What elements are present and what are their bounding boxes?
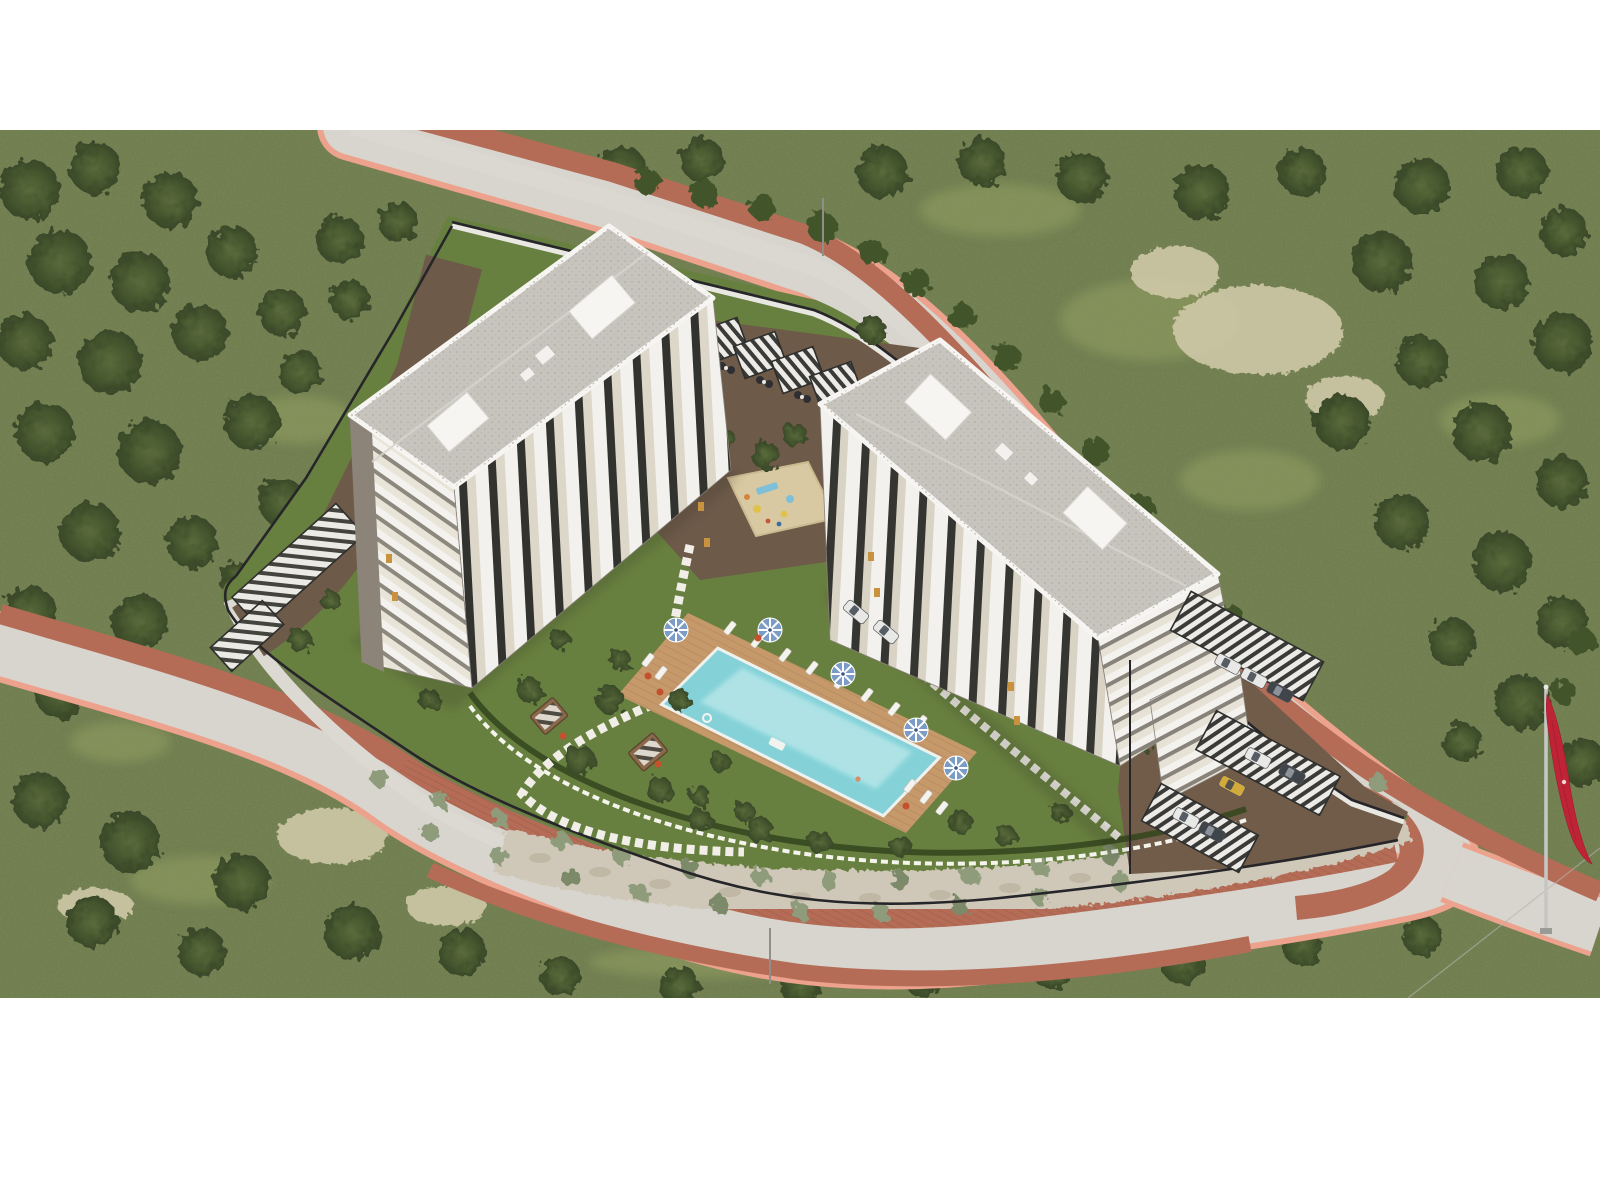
tree-canopy <box>1442 722 1482 762</box>
tree-canopy <box>680 138 724 182</box>
tree-canopy <box>316 216 364 264</box>
tree-canopy <box>1174 164 1230 220</box>
garden-tree <box>688 808 712 832</box>
olive-shrub <box>421 823 439 841</box>
garden-tree <box>710 752 730 772</box>
flowering-shrub <box>903 803 910 810</box>
flowering-shrub <box>645 673 652 680</box>
tree-canopy <box>15 402 75 462</box>
garden-tree <box>609 649 631 671</box>
tree-canopy <box>858 316 886 344</box>
playground-swing <box>744 494 750 500</box>
roadside-bush <box>902 268 930 296</box>
tree-canopy <box>172 304 228 360</box>
roadside-bush <box>859 239 885 265</box>
garden-tree <box>889 835 911 857</box>
tree-canopy <box>330 280 370 320</box>
pergola-table <box>800 395 804 399</box>
tree-canopy <box>856 146 908 198</box>
umbrella <box>664 618 688 642</box>
tree-canopy <box>1394 158 1450 214</box>
olive-shrub <box>551 831 569 849</box>
tree-canopy <box>178 928 226 976</box>
roadside-bush <box>1039 389 1065 415</box>
render-scene <box>0 96 1600 1006</box>
tree-canopy <box>69 142 121 194</box>
olive-shrub <box>1369 774 1387 792</box>
tree-canopy <box>1278 148 1326 196</box>
olive-shrub <box>491 811 509 829</box>
tree-canopy <box>378 202 418 242</box>
rock-outcrop <box>1173 285 1343 375</box>
pergola-seating <box>803 395 811 403</box>
tree-canopy <box>438 928 486 976</box>
roadside-bush <box>690 180 718 208</box>
tree-canopy <box>1536 456 1588 508</box>
tree-canopy <box>1494 674 1550 730</box>
garden-tree <box>735 802 755 822</box>
garden-tree <box>669 689 691 711</box>
lit-window <box>704 538 710 547</box>
tree-canopy <box>0 160 60 220</box>
garden-tree <box>747 817 773 843</box>
garden-tree <box>751 441 779 469</box>
olive-shrub <box>631 884 649 902</box>
umbrella <box>904 718 928 742</box>
lit-window <box>392 592 398 601</box>
pergola-table <box>762 380 766 384</box>
garden-tree <box>647 777 673 803</box>
tree-canopy <box>1374 494 1430 550</box>
playground-seesaw <box>781 511 788 518</box>
tree-canopy <box>958 138 1006 186</box>
olive-shrub <box>711 896 729 914</box>
umbrella <box>758 618 782 642</box>
stone <box>649 879 671 889</box>
roadside-bush <box>1568 628 1596 656</box>
rock-outcrop <box>1130 246 1220 298</box>
grass-patch <box>920 184 1080 236</box>
olive-shrub <box>491 848 509 866</box>
olive-shrub <box>791 902 809 920</box>
umbrella <box>831 662 855 686</box>
stone <box>719 887 741 897</box>
garden-tree <box>948 810 972 834</box>
olive-shrub <box>561 868 579 886</box>
roadside-bush <box>1552 680 1576 704</box>
flowering-shrub <box>560 733 567 740</box>
tree-canopy <box>1472 532 1532 592</box>
olive-shrub <box>431 791 449 809</box>
garden-tree <box>550 630 570 650</box>
tree-canopy <box>1402 916 1442 956</box>
tree-canopy <box>1352 232 1412 292</box>
flowering-shrub <box>657 689 664 696</box>
tree-canopy <box>258 288 306 336</box>
garden-tree <box>808 830 832 854</box>
lit-window <box>1014 716 1020 725</box>
tree-canopy <box>100 812 160 872</box>
garden-tree <box>320 590 340 610</box>
tree-canopy <box>60 502 120 562</box>
umbrella-tip <box>841 672 845 676</box>
garden-tree <box>783 423 807 447</box>
tree-canopy <box>142 172 198 228</box>
grass-patch <box>70 722 170 762</box>
tree-canopy <box>166 516 218 568</box>
tree-canopy <box>118 420 182 484</box>
tree-canopy <box>278 350 322 394</box>
umbrella-tip <box>954 766 958 770</box>
umbrella <box>944 756 968 780</box>
stone <box>1069 873 1091 883</box>
roadside-bush <box>992 343 1020 371</box>
pergola-seating <box>765 380 773 388</box>
playground-spring-toy <box>753 505 761 513</box>
garden-tree <box>565 745 595 775</box>
garden-tree <box>288 628 312 652</box>
tree-canopy <box>224 394 280 450</box>
tree-canopy <box>66 896 118 948</box>
tree-canopy <box>1474 254 1530 310</box>
flowering-shrub <box>655 761 662 768</box>
flag-pole-base <box>1540 928 1552 934</box>
flag-crescent-hint <box>1562 780 1566 784</box>
garden-tree <box>995 825 1017 847</box>
garden-tree <box>690 786 710 806</box>
grass-patch <box>1180 450 1320 510</box>
umbrella-tip <box>674 628 678 632</box>
lit-window <box>1008 682 1014 691</box>
flowering-shrub <box>755 635 762 642</box>
tree-canopy <box>110 252 170 312</box>
tree-canopy <box>1314 394 1370 450</box>
roadside-bush <box>749 194 775 220</box>
roadside-bush <box>949 304 975 330</box>
child-figure <box>777 522 782 527</box>
render-canvas <box>0 0 1600 1200</box>
tree-canopy <box>1056 151 1108 203</box>
tree-canopy <box>1428 618 1476 666</box>
stone <box>529 853 551 863</box>
stone <box>859 893 881 903</box>
lit-window <box>874 588 880 597</box>
umbrella-tip <box>914 728 918 732</box>
stone <box>999 883 1021 893</box>
child-figure <box>766 519 771 524</box>
tree-canopy <box>206 226 258 278</box>
pergola-seating <box>727 366 735 374</box>
tree-canopy <box>1452 402 1512 462</box>
lit-window <box>698 502 704 511</box>
tree-canopy <box>540 956 580 996</box>
olive-shrub <box>371 769 389 787</box>
roadside-bush <box>635 169 661 195</box>
tree-canopy <box>12 772 68 828</box>
lit-window <box>868 552 874 561</box>
umbrella-tip <box>768 628 772 632</box>
swimmer <box>855 776 860 781</box>
tree-canopy <box>324 904 380 960</box>
garden-tree <box>517 677 543 703</box>
pergola-table <box>724 366 728 370</box>
garden-tree <box>596 686 624 714</box>
olive-shrub <box>1111 872 1129 890</box>
flag-pole-cap <box>1544 685 1549 690</box>
olive-shrub <box>751 867 769 885</box>
tree-canopy <box>214 854 270 910</box>
olive-shrub <box>891 872 909 890</box>
stone <box>589 867 611 877</box>
architectural-render-page <box>0 0 1600 1200</box>
tree-canopy <box>78 330 142 394</box>
lit-window <box>386 554 392 563</box>
tree-canopy <box>1396 336 1448 388</box>
stone <box>929 890 951 900</box>
tree-canopy <box>1540 208 1588 256</box>
olive-shrub <box>1031 887 1049 905</box>
playground-dome <box>786 495 794 503</box>
olive-shrub <box>821 872 839 890</box>
olive-shrub <box>961 867 979 885</box>
tree-canopy <box>1532 312 1592 372</box>
tree-canopy <box>1496 146 1548 198</box>
tree-canopy <box>28 230 92 294</box>
